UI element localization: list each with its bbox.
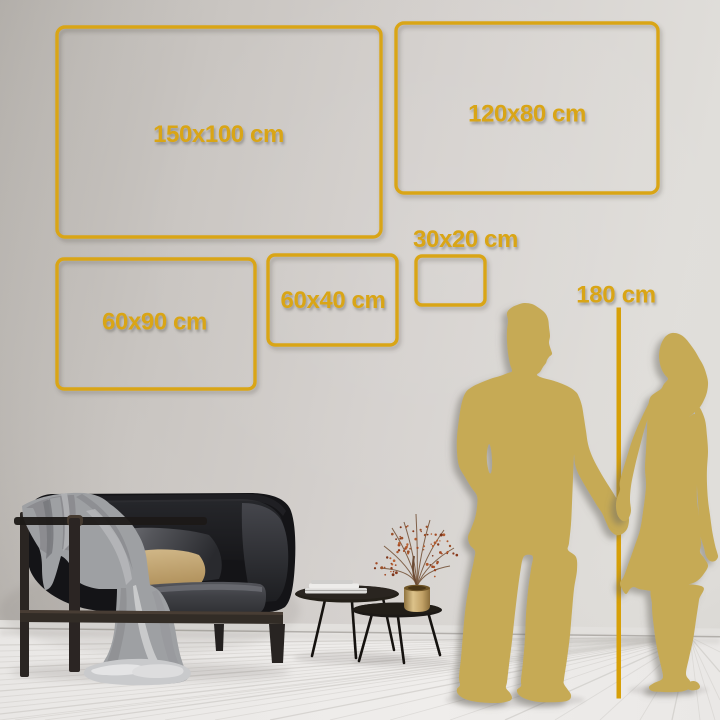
svg-text:150x100 cm: 150x100 cm: [153, 121, 284, 148]
svg-text:60x40 cm: 60x40 cm: [281, 287, 386, 314]
svg-text:120x80 cm: 120x80 cm: [468, 101, 586, 128]
svg-text:60x90 cm: 60x90 cm: [102, 309, 207, 336]
svg-text:30x20 cm: 30x20 cm: [413, 226, 518, 253]
svg-text:180 cm: 180 cm: [576, 282, 656, 309]
